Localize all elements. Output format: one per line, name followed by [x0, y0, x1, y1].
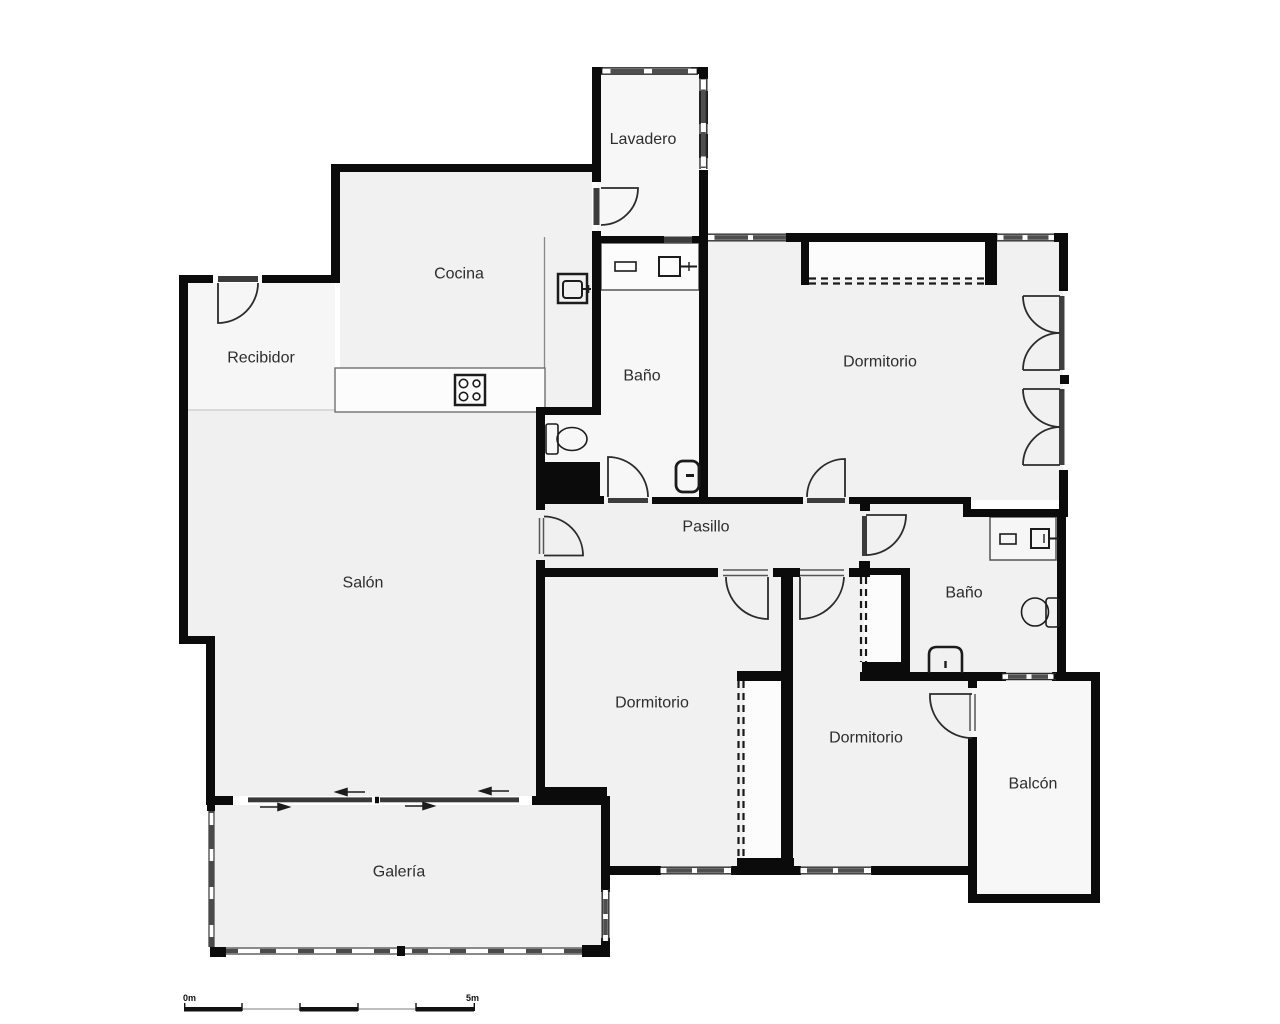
svg-text:Dormitorio: Dormitorio	[843, 354, 917, 371]
svg-text:Lavadero: Lavadero	[610, 131, 677, 148]
svg-text:Dormitorio: Dormitorio	[615, 695, 689, 712]
svg-text:Galería: Galería	[373, 864, 426, 881]
svg-text:Dormitorio: Dormitorio	[829, 730, 903, 747]
svg-text:0m: 0m	[183, 993, 196, 1003]
svg-text:Baño: Baño	[623, 368, 660, 385]
svg-text:Cocina: Cocina	[434, 266, 484, 283]
svg-text:5m: 5m	[466, 993, 479, 1003]
svg-text:Salón: Salón	[343, 575, 384, 592]
svg-text:Balcón: Balcón	[1009, 776, 1058, 793]
svg-text:Recibidor: Recibidor	[227, 350, 295, 367]
svg-text:Pasillo: Pasillo	[682, 519, 729, 536]
svg-text:Baño: Baño	[945, 585, 982, 602]
